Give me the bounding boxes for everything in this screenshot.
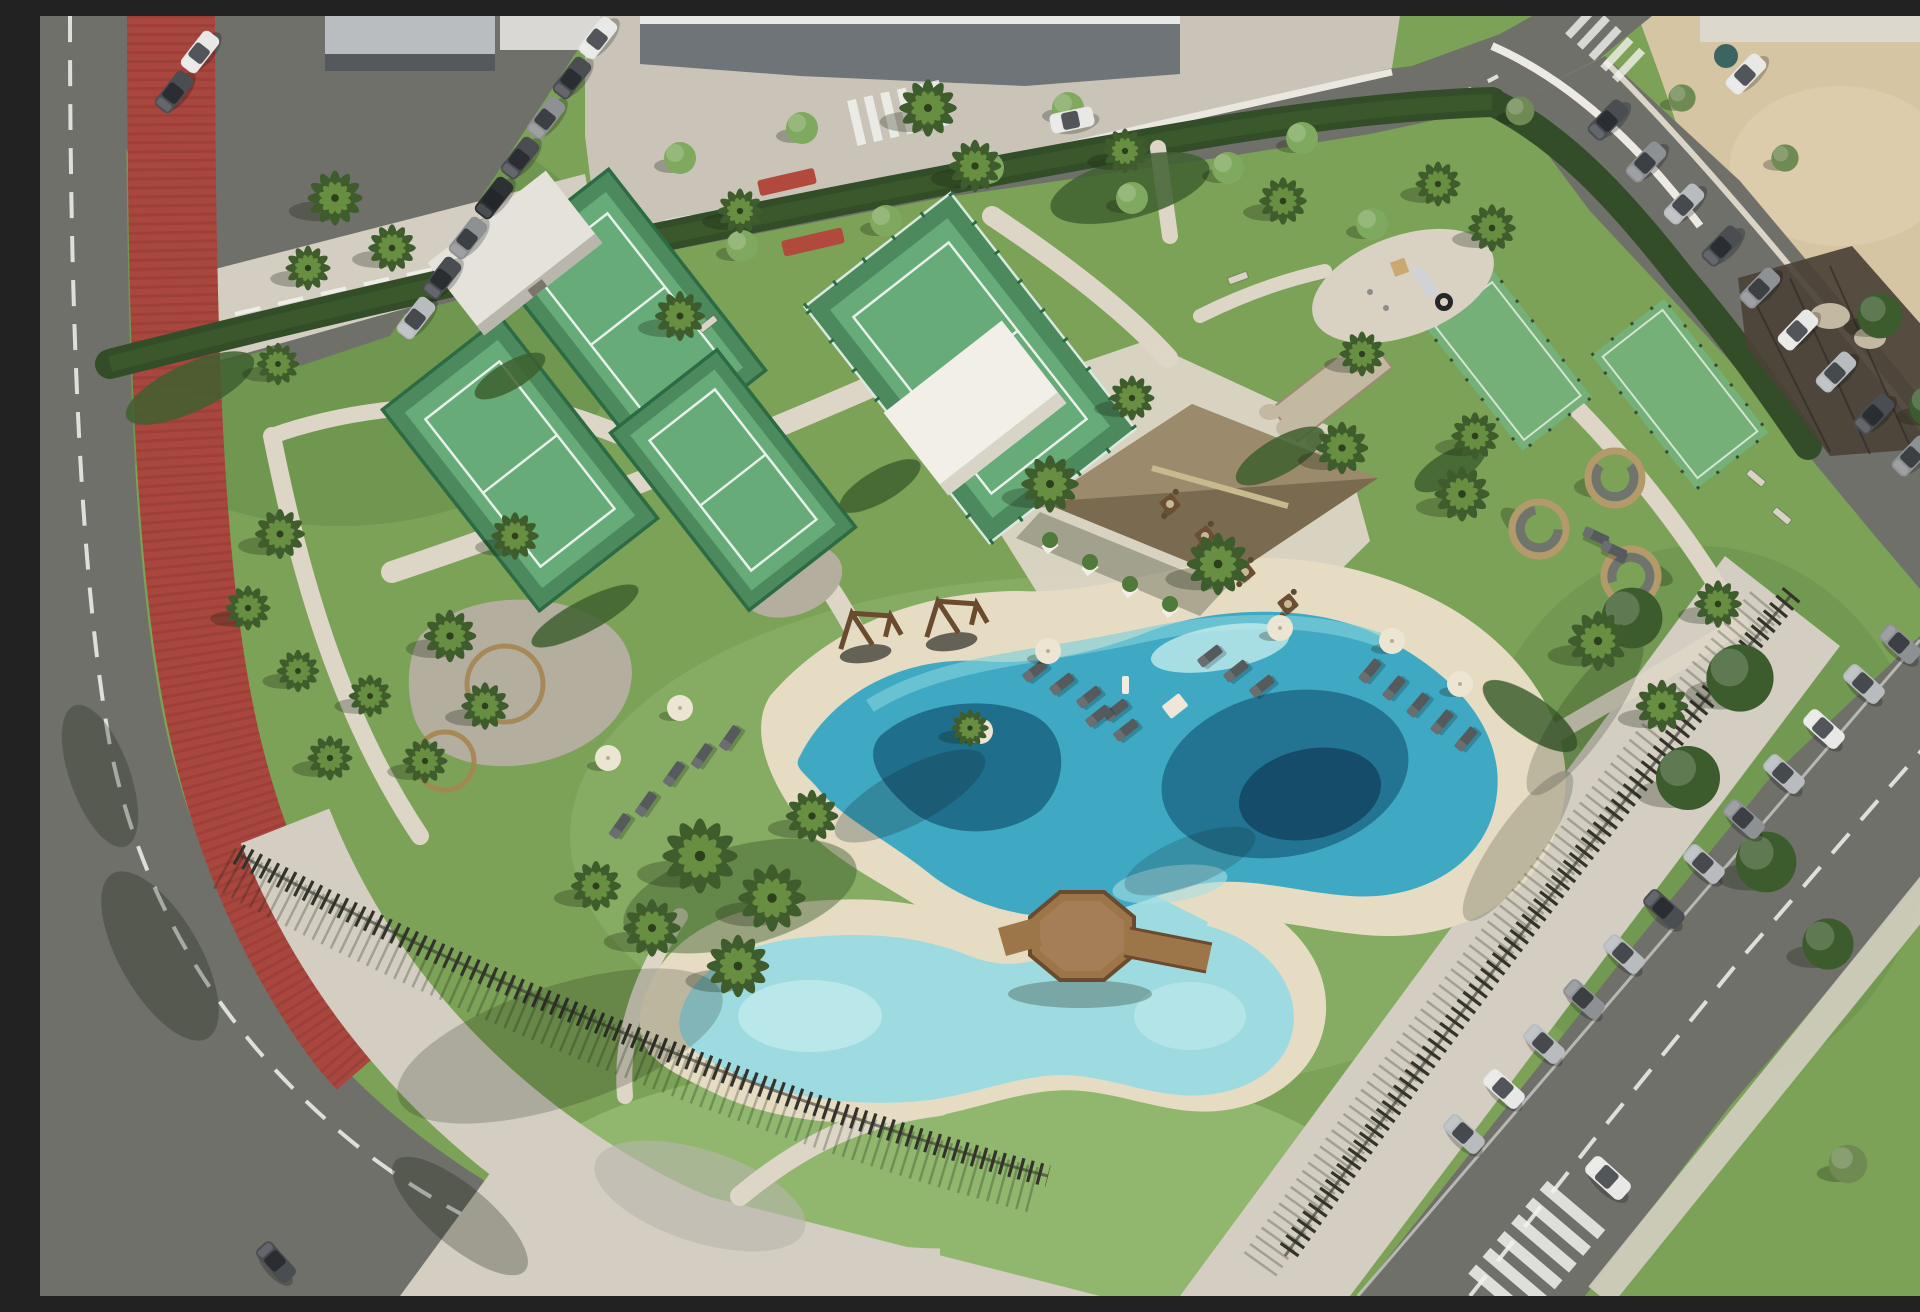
pool-shower: [1122, 676, 1129, 694]
scene-canvas: Oblique aerial drone render of a coastal…: [40, 16, 1920, 1296]
deck-shadow: [1008, 980, 1152, 1008]
beach-kiosk: [1700, 16, 1920, 42]
teal-umbrella: [1714, 44, 1738, 68]
deck-planks: [1040, 901, 1124, 971]
boulder: [1259, 404, 1281, 420]
building-glass-band: [325, 54, 495, 71]
aerial-photo: Oblique aerial drone render of a coastal…: [40, 16, 1920, 1296]
building-parapet: [640, 16, 1180, 24]
tire-hole: [1440, 298, 1448, 306]
kids-shallow: [738, 980, 882, 1052]
